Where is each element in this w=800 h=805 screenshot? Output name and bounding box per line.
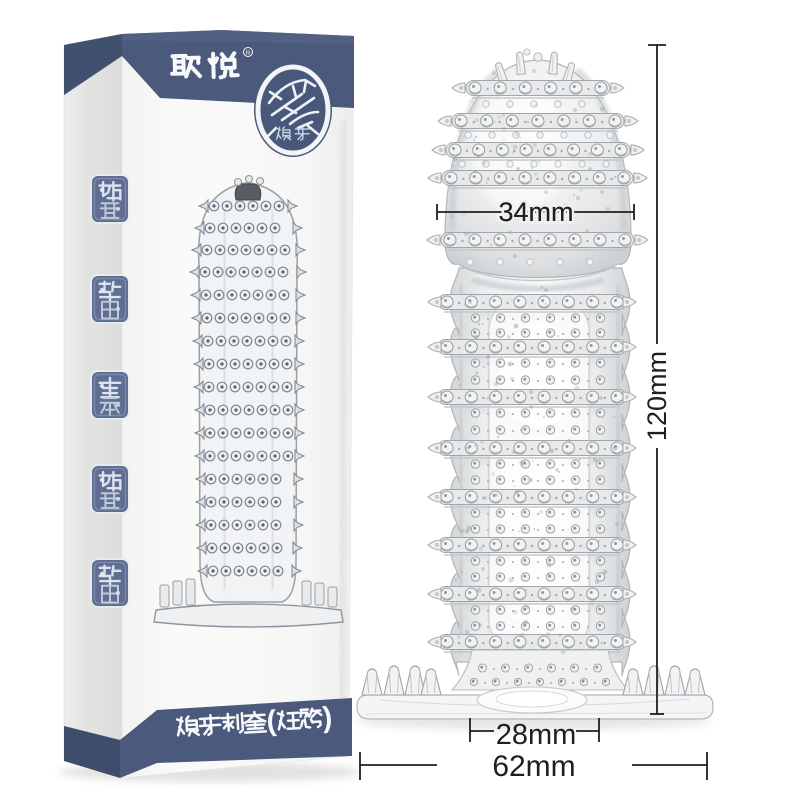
svg-text:): ) [322,702,334,735]
svg-text:62mm: 62mm [492,750,575,783]
svg-text:120mm: 120mm [642,351,672,441]
svg-text:34mm: 34mm [498,197,573,227]
svg-text:R: R [246,50,251,57]
svg-text:28mm: 28mm [496,719,577,751]
